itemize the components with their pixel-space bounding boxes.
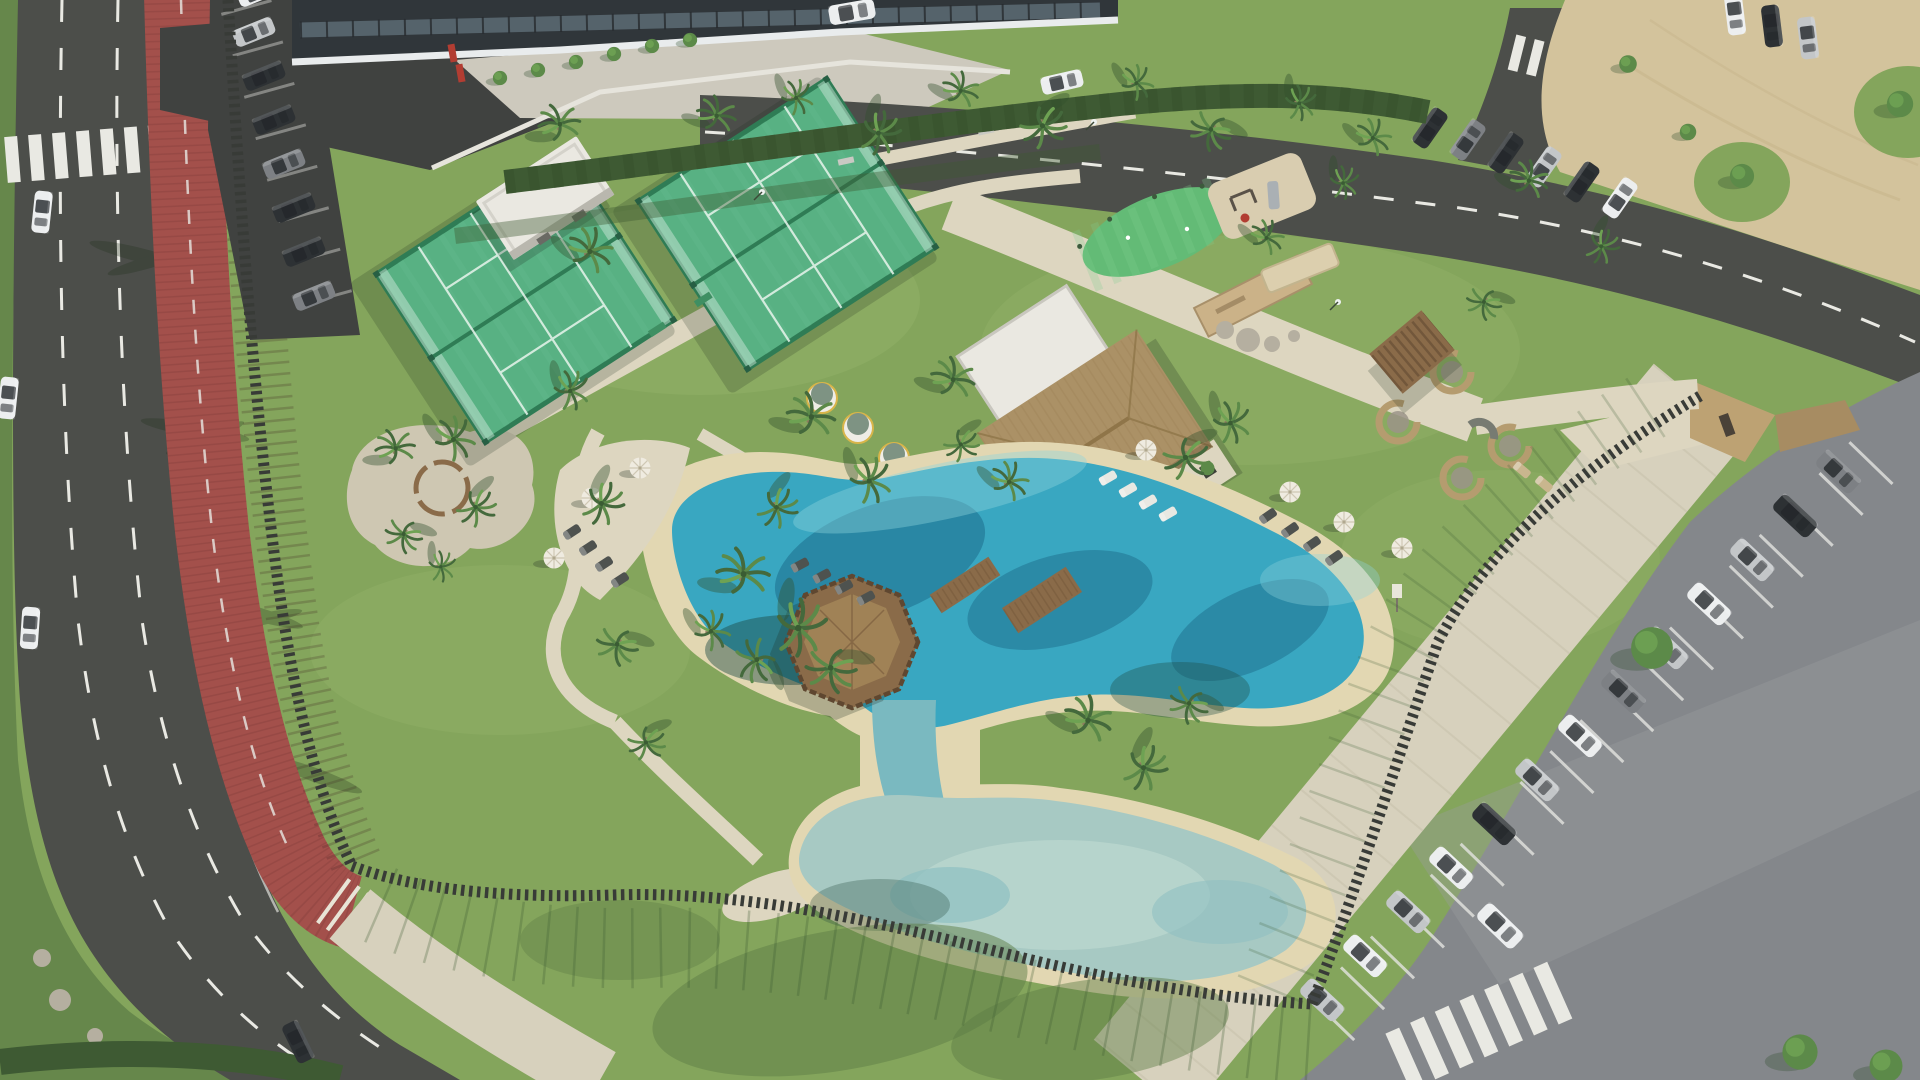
palm-shadow-on-water	[810, 879, 950, 931]
shallow-water-rim	[1260, 554, 1380, 606]
landscape-rock	[49, 989, 71, 1011]
slide	[1267, 181, 1280, 210]
info-sign	[1392, 584, 1402, 598]
olive-tree	[847, 413, 869, 435]
olive-tree	[811, 383, 833, 405]
aerial-resort-render: Aerial drone rendering of a tropical lei…	[0, 0, 1920, 1080]
scene-canvas: Aerial drone rendering of a tropical lei…	[0, 0, 1920, 1080]
landscape-rock	[1236, 328, 1260, 352]
landscape-rock	[1264, 336, 1280, 352]
landscape-rock	[1216, 321, 1234, 339]
kids-pool-blue-patch	[1152, 880, 1288, 944]
landscape-rock	[1288, 330, 1300, 342]
landscape-rock	[33, 949, 51, 967]
car	[20, 606, 41, 649]
